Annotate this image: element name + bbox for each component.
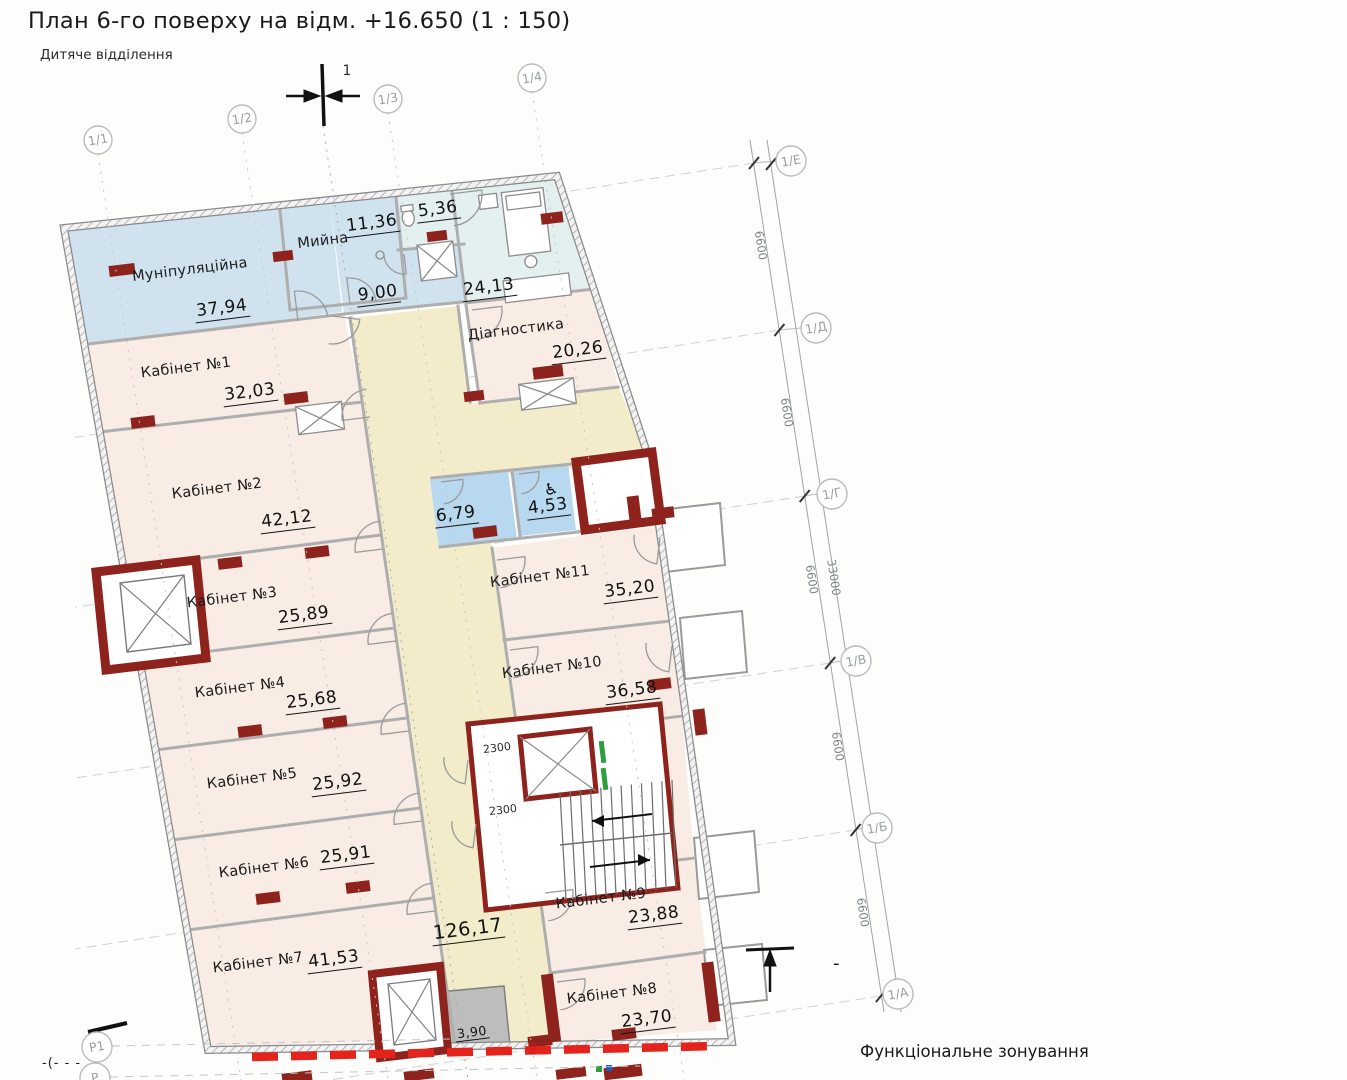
cut-symbol-text: -(- - - bbox=[42, 1056, 81, 1071]
elevator-bottom bbox=[372, 966, 448, 1058]
dim-segment-label: 6600 bbox=[829, 731, 847, 762]
footer-label: Функціональне зонування bbox=[860, 1042, 1089, 1061]
floor-plan-sheet: 1/11/21/31/41/Е1/Д1/Г1/В1/Б1/АР1Р 660066… bbox=[0, 0, 1347, 1080]
dim-segment-label: 6600 bbox=[803, 564, 821, 595]
section-number: 1 bbox=[343, 63, 352, 79]
page-title: План 6-го поверху на відм. +16.650 (1 : … bbox=[28, 8, 570, 34]
dim-segment-label: 6600 bbox=[778, 397, 796, 428]
elevator-left bbox=[96, 560, 206, 670]
minus-mark: - bbox=[833, 953, 840, 974]
dim-segment-label: 6600 bbox=[854, 897, 872, 928]
page-subtitle: Дитяче відділення bbox=[40, 47, 173, 63]
dim-total-label: 33000 bbox=[824, 558, 843, 596]
elevator-top-right bbox=[576, 452, 661, 530]
pv-mark: ПВ bbox=[529, 1042, 539, 1055]
wheelchair-icon: ♿ bbox=[543, 479, 560, 500]
dim-segment-label: 6600 bbox=[752, 230, 770, 261]
cut-mark-bottom-left bbox=[88, 1023, 127, 1032]
axis-bubble-label: Р1 bbox=[88, 1038, 106, 1055]
